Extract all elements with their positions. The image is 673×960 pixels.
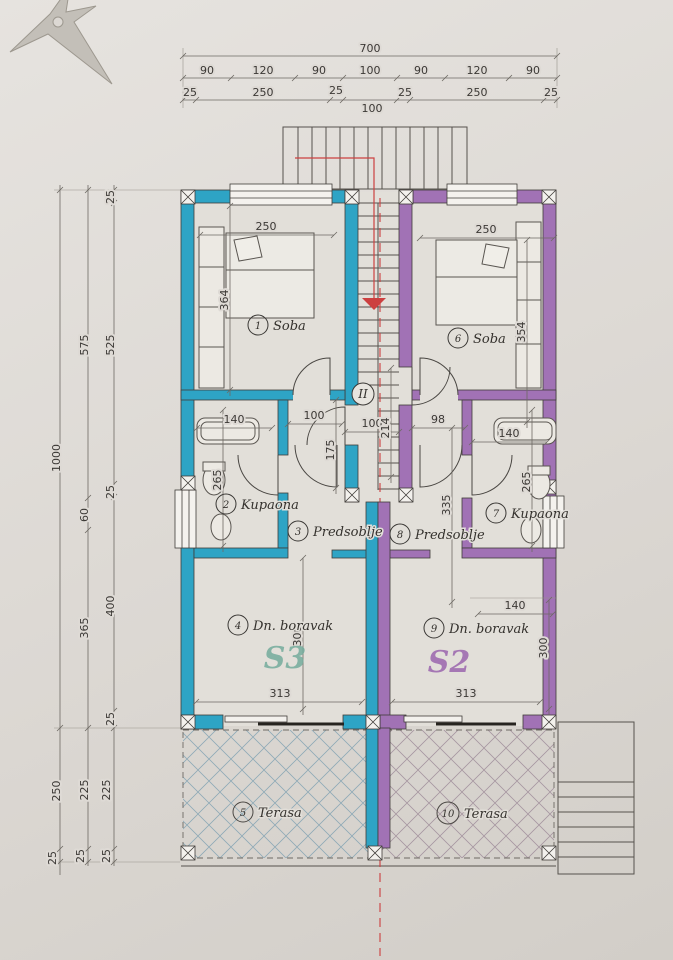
dim-label: 225 bbox=[100, 780, 113, 801]
dim-label: 300 bbox=[537, 638, 550, 659]
dim-label: 98 bbox=[431, 413, 445, 426]
dim-label: 1000 bbox=[50, 444, 63, 472]
dim-label: 250 bbox=[50, 781, 63, 802]
stairwell-label: II bbox=[352, 383, 374, 405]
unit-label-s3: S3 bbox=[264, 641, 307, 676]
room-name: Predsoblje bbox=[414, 528, 485, 543]
dim-label: 25 bbox=[46, 851, 59, 865]
window-top-left bbox=[230, 184, 332, 205]
dim-label: 90 bbox=[414, 64, 428, 77]
window-right-wall bbox=[543, 496, 564, 548]
dim-label: 140 bbox=[499, 427, 520, 440]
dim-label: 25 bbox=[104, 485, 117, 499]
terrace-left bbox=[183, 730, 374, 858]
dim-label: 250 bbox=[476, 223, 497, 236]
dim-label: 140 bbox=[224, 413, 245, 426]
dim-label: 250 bbox=[253, 86, 274, 99]
room-number: 7 bbox=[493, 509, 500, 520]
dim-label: 25 bbox=[104, 712, 117, 726]
dim-label: 90 bbox=[200, 64, 214, 77]
room-name: Terasa bbox=[258, 806, 302, 821]
stairwell-number: II bbox=[357, 387, 368, 401]
room-name: Kupaona bbox=[240, 498, 299, 513]
dim-label: 365 bbox=[78, 618, 91, 639]
terrace-right bbox=[376, 730, 554, 858]
dim-label: 364 bbox=[218, 290, 231, 311]
room-name: Kupaona bbox=[510, 507, 569, 522]
dim-label: 60 bbox=[78, 508, 91, 522]
room-number: 1 bbox=[255, 321, 261, 332]
dim-label: 25 bbox=[329, 84, 343, 97]
dim-label: 225 bbox=[78, 780, 91, 801]
dim-label: 265 bbox=[211, 470, 224, 491]
dim-label: 265 bbox=[520, 472, 533, 493]
window-top-right bbox=[447, 184, 517, 205]
room-name: Predsoblje bbox=[312, 525, 383, 540]
room-name: Soba bbox=[273, 319, 306, 334]
dim-label: 25 bbox=[100, 849, 113, 863]
dim-total-width: 700 bbox=[360, 42, 381, 55]
dim-label: 335 bbox=[440, 495, 453, 516]
dim-label: 575 bbox=[78, 335, 91, 356]
exterior-stairs-right bbox=[558, 722, 634, 874]
dim-label: 100 bbox=[362, 102, 383, 115]
dim-label: 313 bbox=[456, 687, 477, 700]
dim-label: 250 bbox=[467, 86, 488, 99]
dim-label: 25 bbox=[104, 190, 117, 204]
room-number: 5 bbox=[240, 808, 246, 819]
dim-label: 175 bbox=[324, 440, 337, 461]
dim-label: 90 bbox=[312, 64, 326, 77]
dim-label: 100 bbox=[304, 409, 325, 422]
dim-label: 354 bbox=[515, 322, 528, 343]
room-number: 10 bbox=[442, 809, 455, 820]
room-number: 9 bbox=[431, 624, 438, 635]
dim-label: 214 bbox=[379, 418, 392, 439]
dim-label: 313 bbox=[270, 687, 291, 700]
dim-label: 25 bbox=[183, 86, 197, 99]
room-name: Terasa bbox=[464, 807, 508, 822]
window-left-wall bbox=[175, 490, 196, 548]
dim-label: 25 bbox=[398, 86, 412, 99]
room-name: Soba bbox=[473, 332, 506, 347]
room-number: 8 bbox=[397, 530, 403, 541]
room-number: 2 bbox=[222, 500, 229, 511]
dim-label: 120 bbox=[253, 64, 274, 77]
room-number: 6 bbox=[455, 334, 462, 345]
room-number: 3 bbox=[295, 527, 301, 538]
dim-label: 525 bbox=[104, 335, 117, 356]
room-name: Dn. boravak bbox=[448, 622, 529, 637]
room-name: Dn. boravak bbox=[252, 619, 333, 634]
dim-label: 90 bbox=[526, 64, 540, 77]
unit-label-s2: S2 bbox=[428, 645, 471, 680]
dim-label: 25 bbox=[544, 86, 558, 99]
dim-label: 25 bbox=[74, 849, 87, 863]
dim-label: 400 bbox=[104, 596, 117, 617]
dim-label: 120 bbox=[467, 64, 488, 77]
floor-plan: 700 90 120 90 100 90 120 90 25 250 25 10… bbox=[0, 0, 673, 960]
room-number: 4 bbox=[234, 621, 241, 632]
dim-label: 100 bbox=[360, 64, 381, 77]
dim-label: 250 bbox=[256, 220, 277, 233]
dim-label: 140 bbox=[505, 599, 526, 612]
north-star-icon bbox=[10, 0, 112, 84]
